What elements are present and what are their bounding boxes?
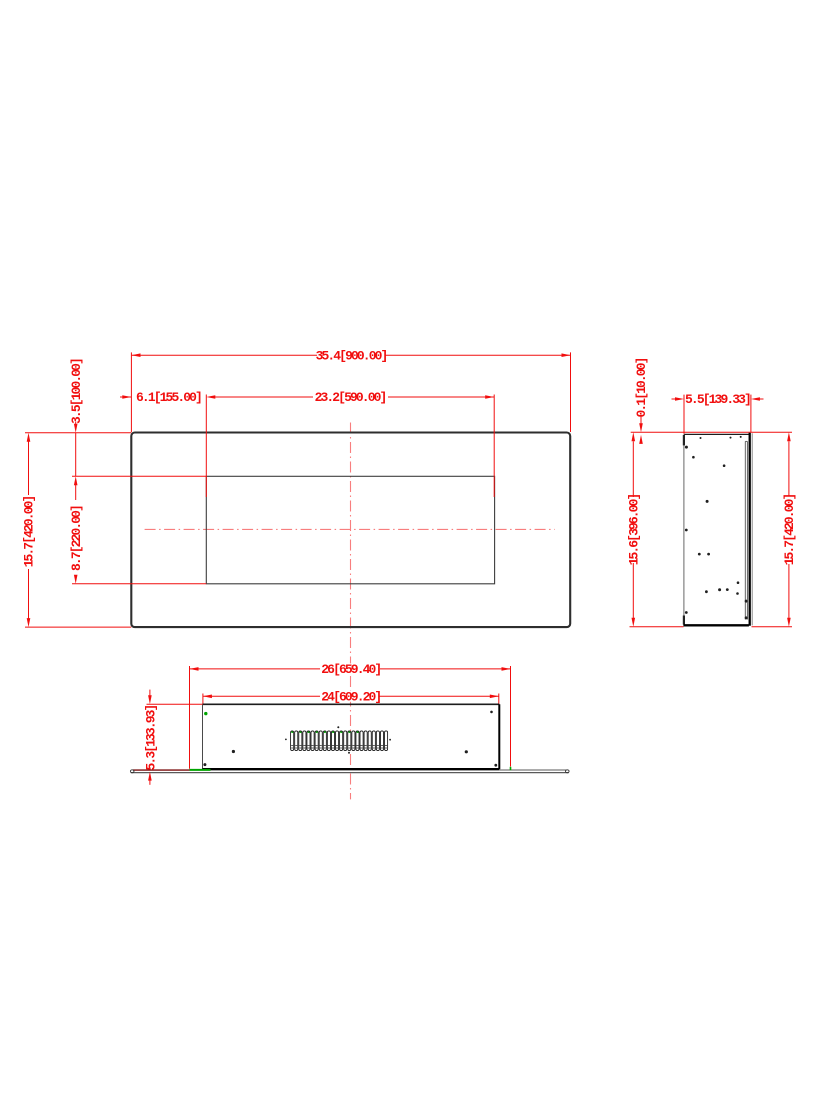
svg-text:15.7[420.00]: 15.7[420.00] bbox=[782, 495, 797, 566]
svg-text:23.2[590.00]: 23.2[590.00] bbox=[315, 390, 386, 405]
svg-text:15.7[420.00]: 15.7[420.00] bbox=[22, 497, 37, 568]
svg-text:0.1[10.00]: 0.1[10.00] bbox=[634, 358, 649, 417]
svg-text:8.7[220.00]: 8.7[220.00] bbox=[69, 506, 84, 571]
svg-text:6.1[155.00]: 6.1[155.00] bbox=[136, 390, 201, 405]
svg-text:3.5[100.00]: 3.5[100.00] bbox=[69, 359, 84, 424]
svg-text:35.4[900.00]: 35.4[900.00] bbox=[316, 348, 387, 363]
svg-text:26[659.40]: 26[659.40] bbox=[321, 662, 380, 677]
svg-text:24[609.20]: 24[609.20] bbox=[321, 690, 380, 705]
svg-text:15.6[396.00]: 15.6[396.00] bbox=[627, 495, 642, 566]
svg-text:5.3[133.93]: 5.3[133.93] bbox=[144, 705, 159, 770]
svg-text:5.5[139.33]: 5.5[139.33] bbox=[685, 392, 750, 407]
